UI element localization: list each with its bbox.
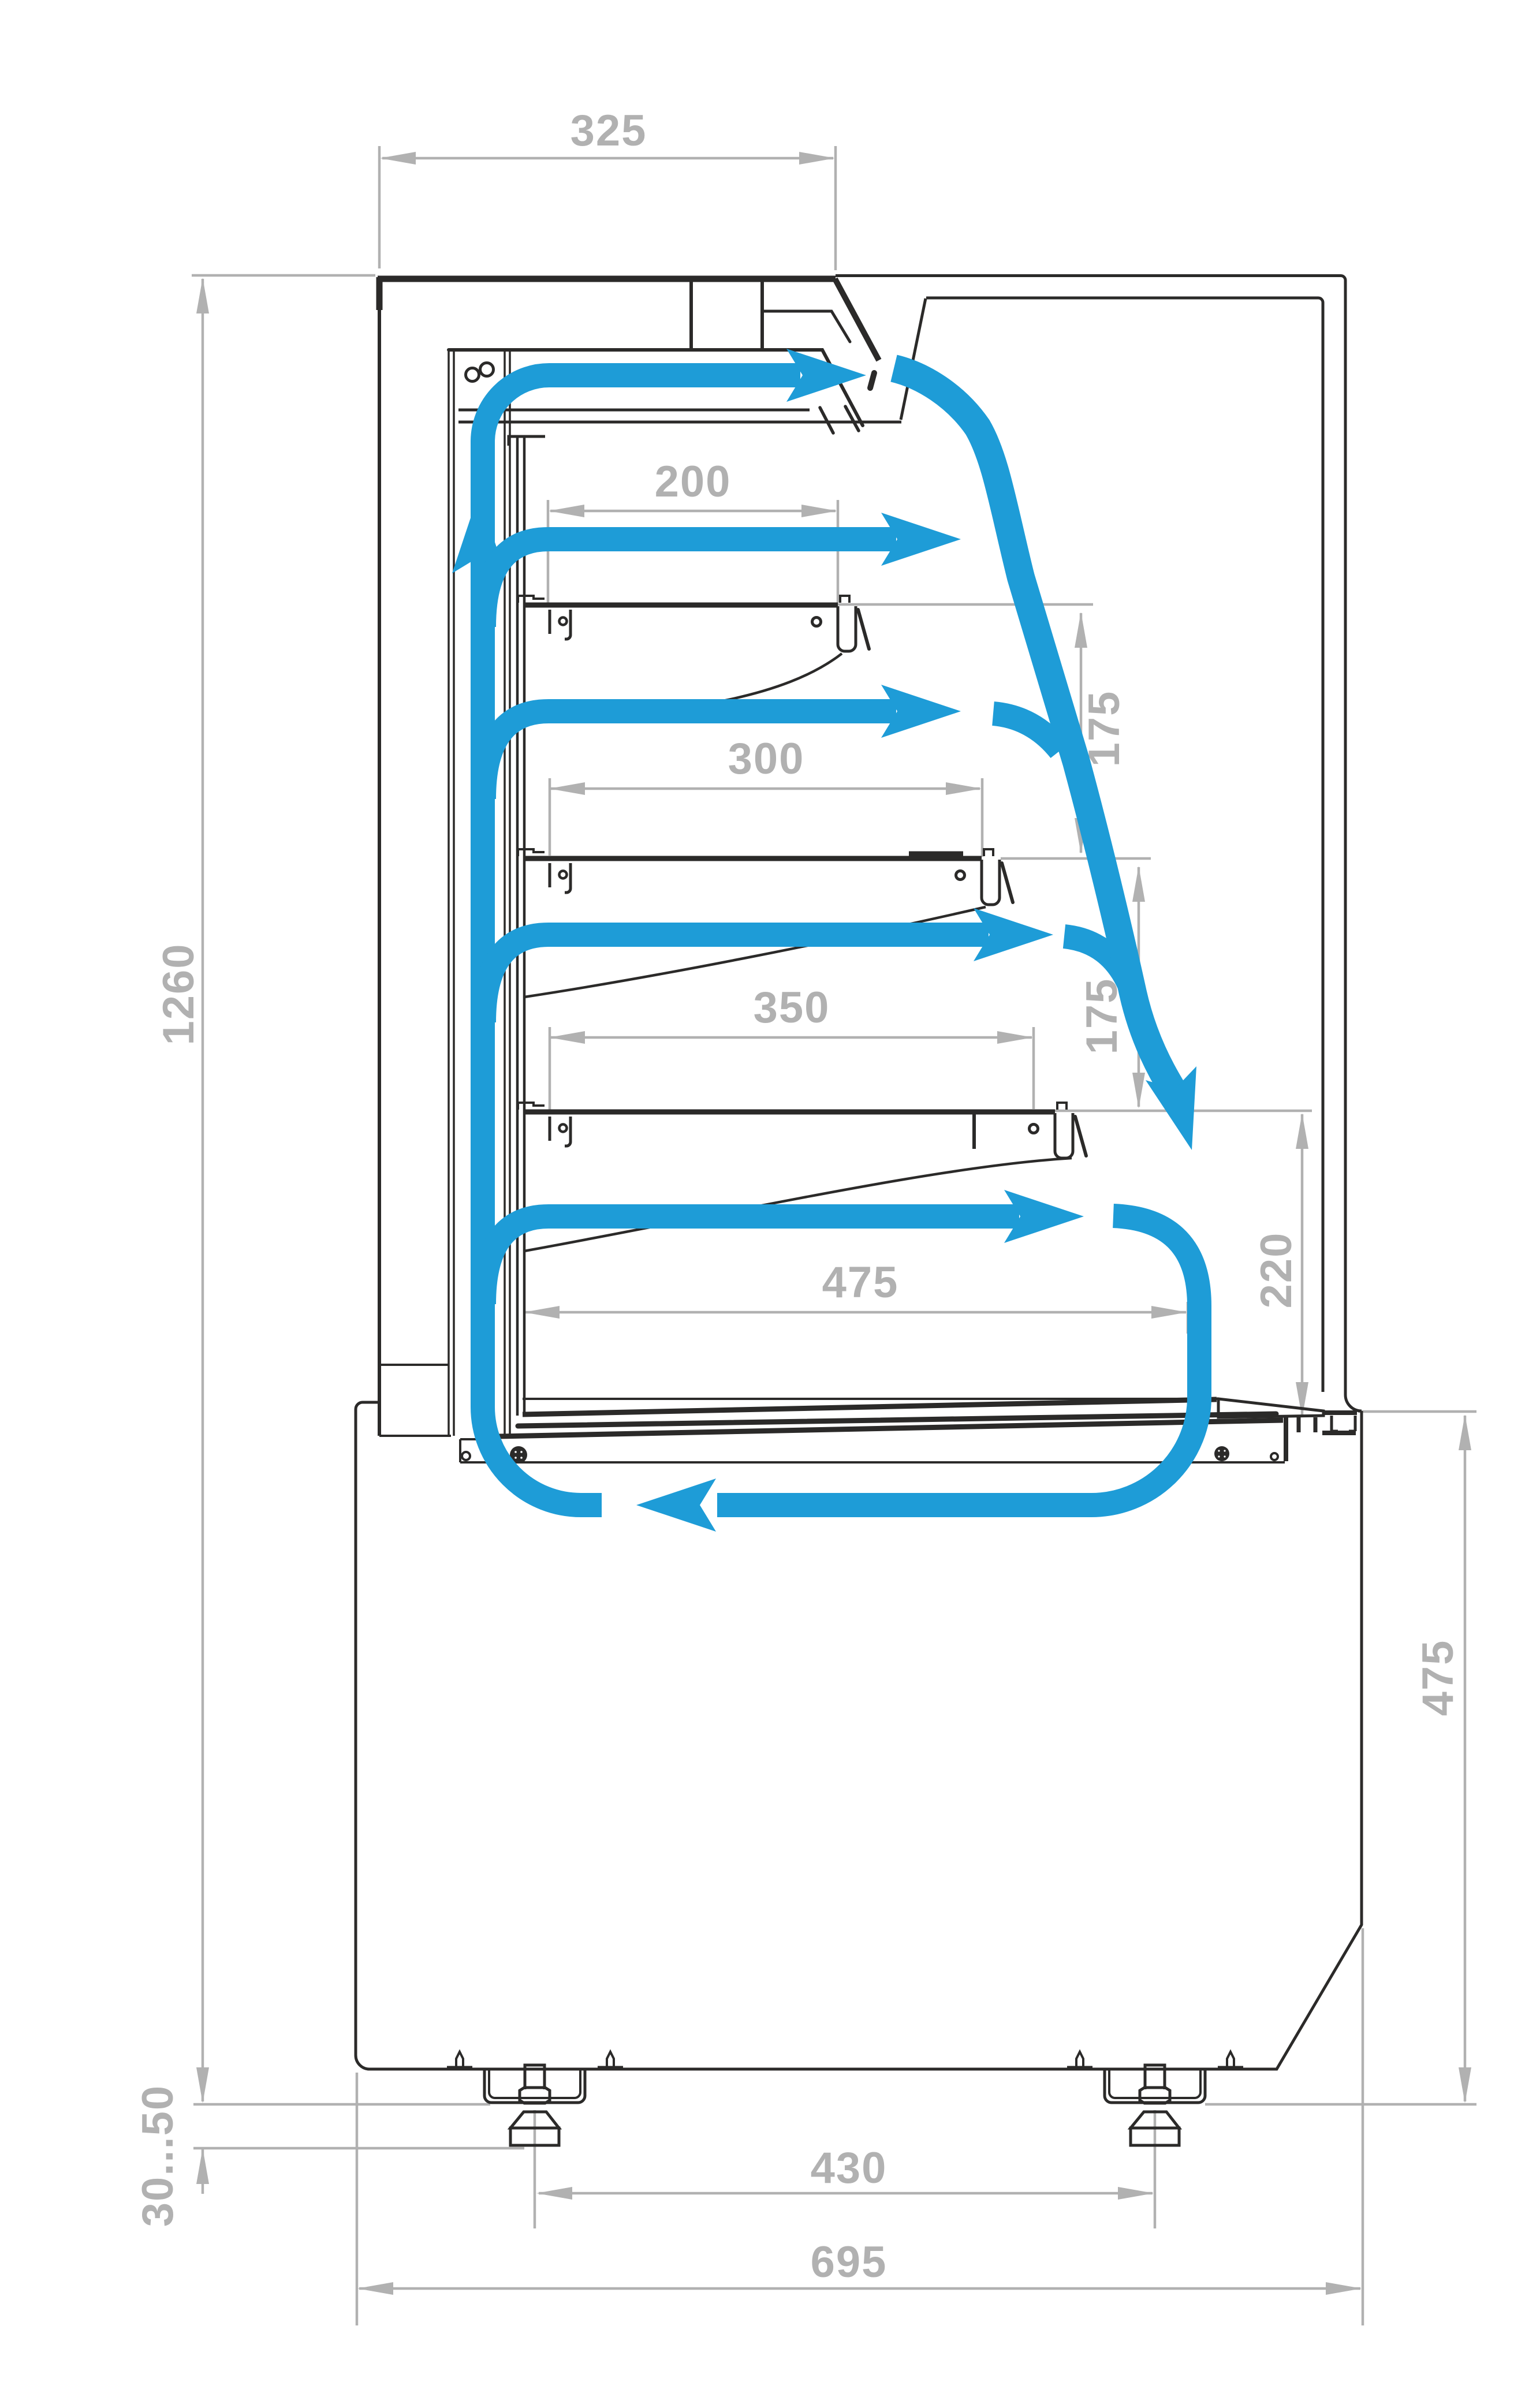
svg-text:475: 475: [822, 1258, 899, 1307]
svg-text:30...50: 30...50: [133, 2085, 182, 2227]
svg-text:695: 695: [811, 2238, 888, 2287]
svg-text:430: 430: [811, 2144, 888, 2193]
svg-text:325: 325: [570, 106, 647, 155]
svg-text:200: 200: [655, 457, 732, 506]
svg-text:350: 350: [754, 983, 830, 1032]
svg-text:220: 220: [1252, 1232, 1301, 1309]
svg-text:300: 300: [728, 734, 805, 783]
svg-text:1260: 1260: [154, 943, 203, 1045]
svg-text:475: 475: [1414, 1640, 1463, 1716]
